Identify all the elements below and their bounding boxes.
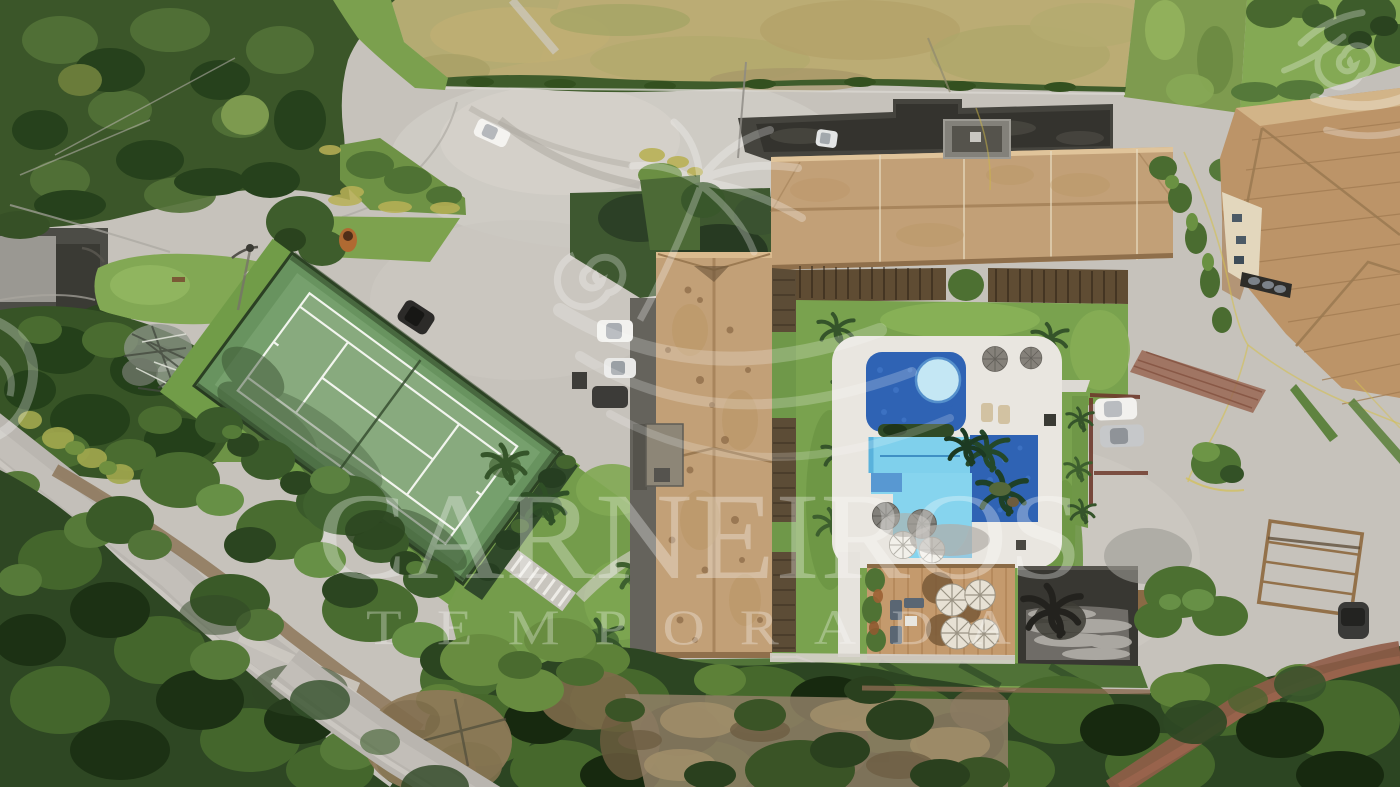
svg-text:TEMPORADA: TEMPORADA bbox=[366, 599, 1046, 655]
svg-text:CARNEIROS: CARNEIROS bbox=[317, 468, 1083, 605]
